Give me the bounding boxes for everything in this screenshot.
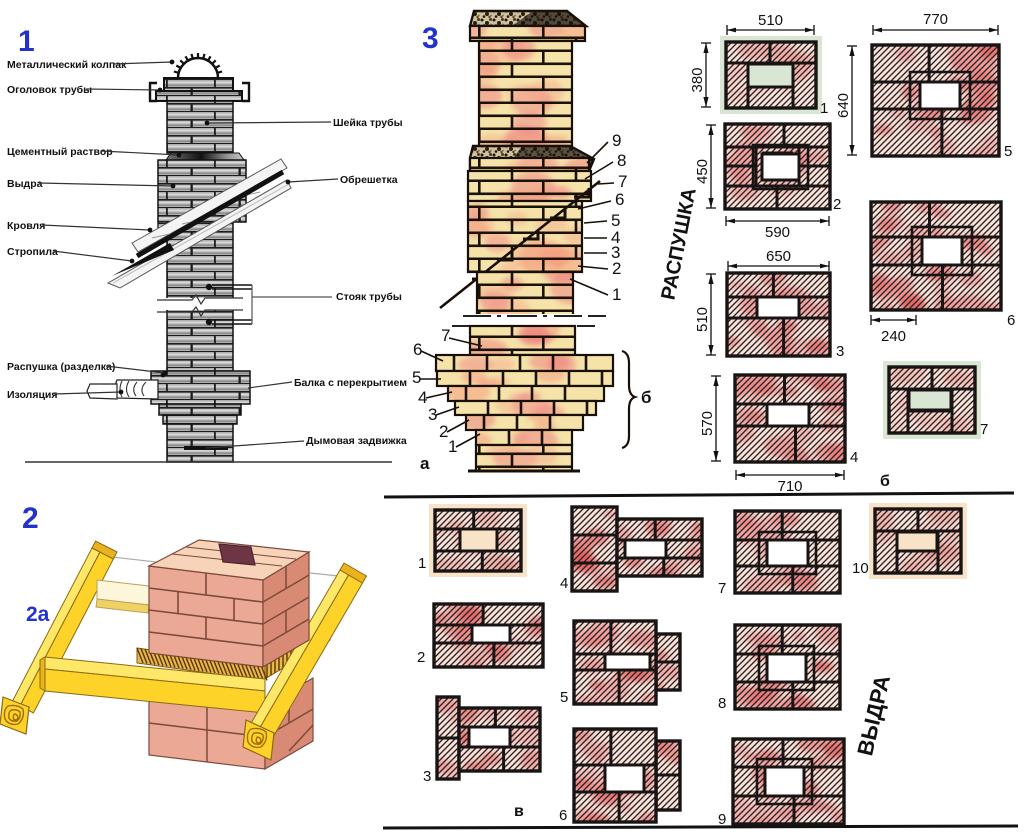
svg-text:9: 9 xyxy=(612,131,621,150)
svg-text:8: 8 xyxy=(617,151,626,170)
svg-text:450: 450 xyxy=(694,159,711,184)
svg-text:570: 570 xyxy=(699,411,716,436)
svg-text:Стропила: Стропила xyxy=(7,246,58,258)
svg-text:2a: 2a xyxy=(26,603,50,626)
svg-text:Обрешетка: Обрешетка xyxy=(340,174,398,186)
svg-text:Выдра: Выдра xyxy=(7,178,43,190)
svg-text:а: а xyxy=(420,454,430,473)
svg-text:380: 380 xyxy=(689,67,706,92)
svg-text:4: 4 xyxy=(560,575,568,592)
svg-text:8: 8 xyxy=(718,695,726,712)
svg-text:Шейка трубы: Шейка трубы xyxy=(333,117,403,129)
svg-text:9: 9 xyxy=(718,811,726,828)
svg-text:2: 2 xyxy=(833,196,841,213)
svg-text:3: 3 xyxy=(836,343,844,360)
svg-text:б: б xyxy=(641,388,652,407)
svg-text:510: 510 xyxy=(694,307,711,332)
svg-text:5: 5 xyxy=(560,689,568,706)
svg-text:650: 650 xyxy=(766,248,791,265)
svg-text:Стояк трубы: Стояк трубы xyxy=(336,291,402,303)
svg-text:5: 5 xyxy=(1004,143,1012,160)
svg-text:7: 7 xyxy=(441,326,450,345)
svg-text:510: 510 xyxy=(758,12,783,29)
svg-text:4: 4 xyxy=(850,449,858,466)
svg-text:590: 590 xyxy=(765,224,790,241)
svg-text:6: 6 xyxy=(559,807,567,824)
svg-text:Балка с перекрытием: Балка с перекрытием xyxy=(294,377,407,389)
svg-text:Изоляция: Изоляция xyxy=(7,389,58,401)
svg-text:3: 3 xyxy=(422,22,439,55)
svg-text:Оголовок трубы: Оголовок трубы xyxy=(7,84,92,96)
svg-text:Цементный раствор: Цементный раствор xyxy=(7,146,113,158)
svg-text:7: 7 xyxy=(718,580,726,597)
svg-text:5: 5 xyxy=(412,368,421,387)
svg-text:6: 6 xyxy=(413,340,422,359)
svg-text:2: 2 xyxy=(417,649,425,666)
svg-text:10: 10 xyxy=(852,560,869,577)
svg-text:1: 1 xyxy=(18,25,35,58)
svg-text:1: 1 xyxy=(612,285,621,304)
svg-text:Металлический колпак: Металлический колпак xyxy=(7,59,127,71)
svg-text:640: 640 xyxy=(835,93,852,118)
svg-text:б: б xyxy=(880,473,890,490)
svg-text:710: 710 xyxy=(777,478,802,495)
svg-text:7: 7 xyxy=(980,421,988,438)
svg-text:1: 1 xyxy=(820,100,828,117)
svg-text:6: 6 xyxy=(1007,312,1015,329)
svg-text:2: 2 xyxy=(612,259,621,278)
svg-text:240: 240 xyxy=(881,328,906,345)
svg-text:Дымовая задвижка: Дымовая задвижка xyxy=(306,435,407,447)
svg-text:6: 6 xyxy=(615,190,624,209)
svg-text:2: 2 xyxy=(22,502,39,535)
svg-text:7: 7 xyxy=(618,172,627,191)
svg-text:Кровля: Кровля xyxy=(7,220,45,232)
svg-text:Распушка (разделка): Распушка (разделка) xyxy=(7,361,115,373)
svg-text:3: 3 xyxy=(423,768,431,785)
svg-text:770: 770 xyxy=(923,11,948,28)
svg-text:в: в xyxy=(514,803,524,820)
svg-text:1: 1 xyxy=(418,555,426,572)
